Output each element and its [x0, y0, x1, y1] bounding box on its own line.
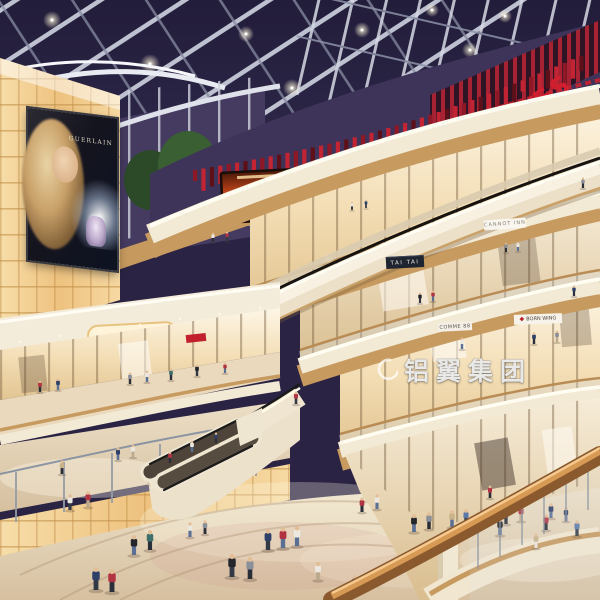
store-sign-label: CANNOT INN — [484, 220, 526, 229]
scene-canvas: THEATRES — [0, 0, 600, 600]
store-sign-comme: COMME 88 — [438, 321, 472, 332]
store-sign-label: BORN WING — [526, 315, 556, 322]
watermark-text: 铝翼集团 — [404, 352, 532, 388]
store-sign-label: TAI TAI — [390, 259, 419, 267]
red-diamond-icon: ◆ — [520, 316, 525, 322]
watermark: 铝翼集团 — [372, 352, 532, 388]
perfume-billboard: GUERLAIN — [28, 108, 117, 271]
store-sign-born-wing: ◆ BORN WING — [514, 313, 562, 325]
store-sign-label: COMME 88 — [439, 323, 470, 331]
mall-atrium-render: THEATRES — [0, 0, 600, 600]
watermark-swirl-icon — [372, 357, 398, 383]
store-sign-tai-tai: TAI TAI — [386, 255, 425, 269]
billboard-perfume-bottle — [86, 215, 106, 247]
